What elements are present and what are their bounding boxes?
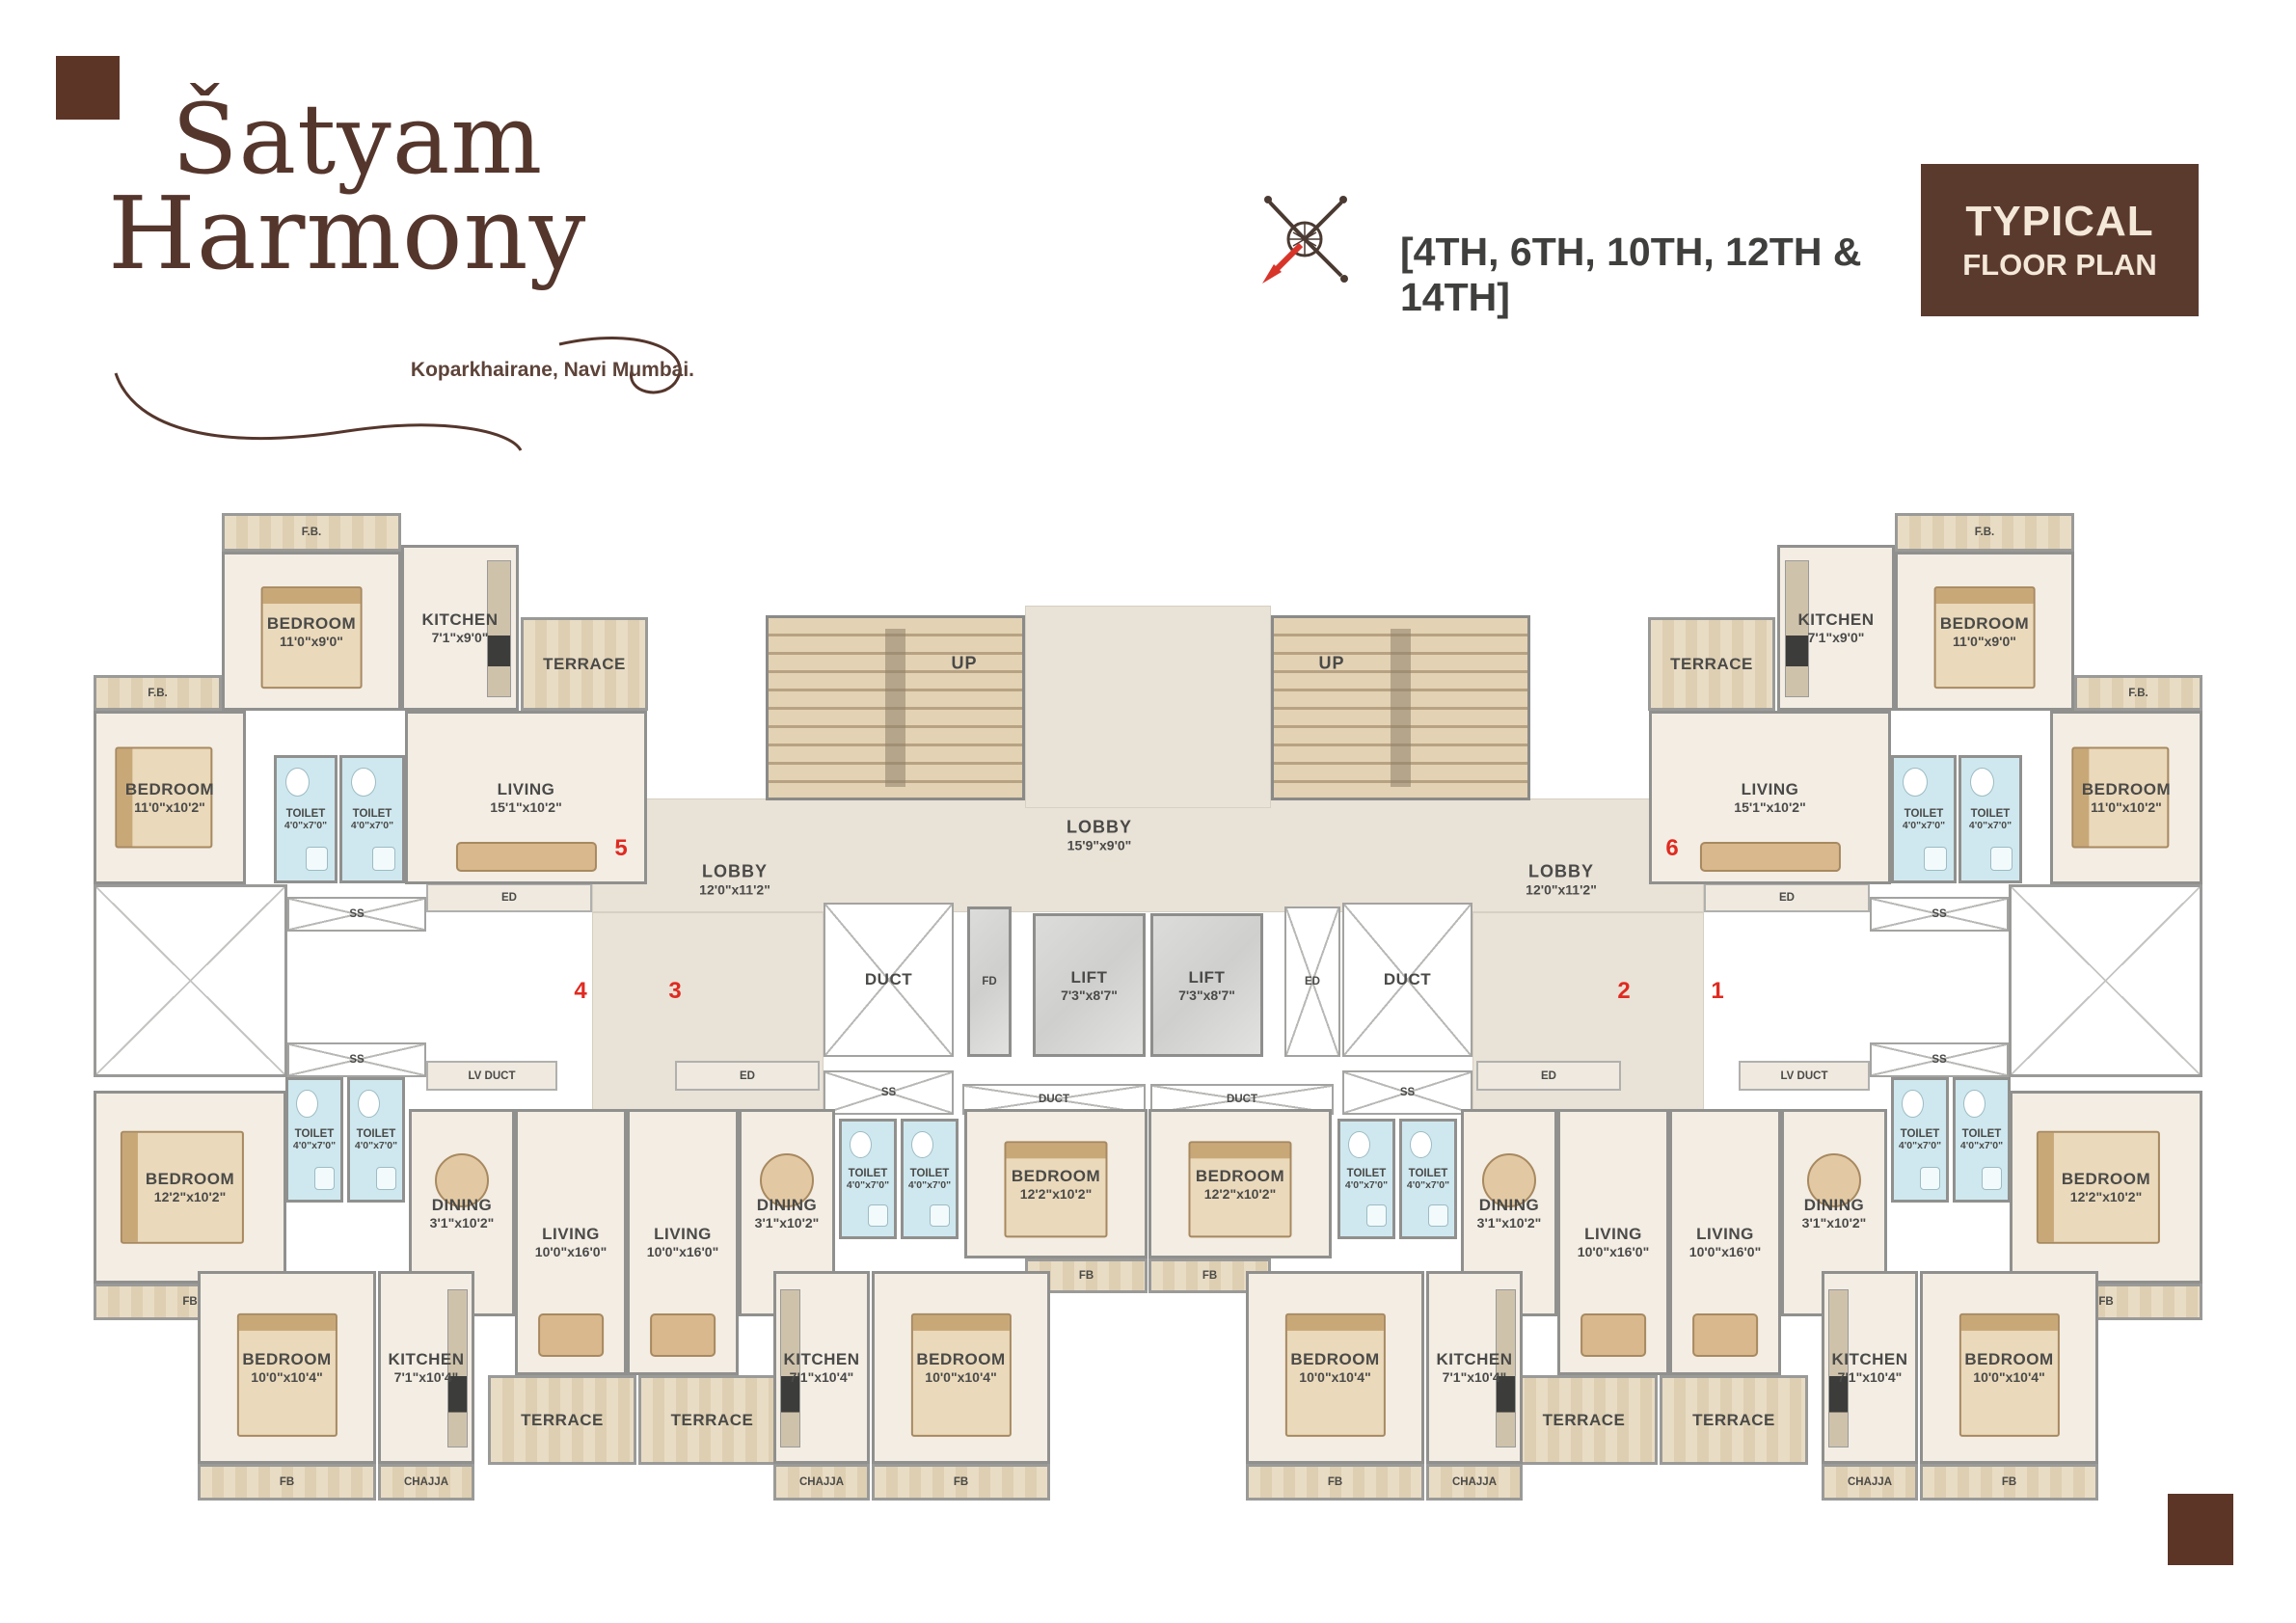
kitchen-counter-icon bbox=[780, 1289, 800, 1448]
room-toilet: TOILET4'0"x7'0" bbox=[274, 755, 338, 883]
room-terrace: TERRACE bbox=[488, 1375, 636, 1465]
room-f-b: F.B. bbox=[1895, 513, 2074, 552]
room-ed: ED bbox=[426, 883, 592, 912]
room-living: LIVING15'1"x10'2" bbox=[405, 711, 647, 884]
room-toilet: TOILET4'0"x7'0" bbox=[1953, 1077, 2011, 1203]
room-terrace: TERRACE bbox=[1648, 617, 1775, 711]
bed-icon bbox=[1958, 1313, 2059, 1437]
sofa-icon bbox=[1699, 842, 1840, 871]
room-living: LIVING10'0"x16'0" bbox=[1557, 1109, 1669, 1375]
room-living: LIVING10'0"x16'0" bbox=[515, 1109, 627, 1375]
room-duct: DUCT bbox=[824, 903, 954, 1057]
sofa-icon bbox=[1580, 1313, 1646, 1357]
bed-icon bbox=[1188, 1142, 1291, 1237]
floorplan: EDEDSSSSSSSSLV DUCTLV DUCTEDEDDUCTDUCTFD… bbox=[0, 0, 2296, 1623]
room-toilet: TOILET4'0"x7'0" bbox=[1399, 1119, 1457, 1239]
room-lv-duct: LV DUCT bbox=[1739, 1061, 1870, 1091]
sofa-icon bbox=[1692, 1313, 1758, 1357]
room-living: LIVING15'1"x10'2" bbox=[1649, 711, 1891, 884]
bed-icon bbox=[236, 1313, 337, 1437]
room-ss: SS bbox=[287, 897, 426, 932]
unit-number-1: 1 bbox=[1711, 978, 1723, 1005]
bed-icon bbox=[121, 1131, 244, 1244]
room-kitchen: KITCHEN7'1"x10'4" bbox=[1822, 1271, 1918, 1464]
unit-number-3: 3 bbox=[668, 978, 681, 1005]
unit-number-4: 4 bbox=[574, 978, 586, 1005]
bed-icon bbox=[1284, 1313, 1385, 1437]
room-living: LIVING10'0"x16'0" bbox=[627, 1109, 739, 1375]
room-bedroom: BEDROOM12'2"x10'2" bbox=[1148, 1109, 1332, 1258]
room-ss: SS bbox=[287, 1042, 426, 1077]
room-terrace: TERRACE bbox=[1660, 1375, 1808, 1465]
room-lift: LIFT7'3"x8'7" bbox=[1150, 913, 1263, 1057]
unit-number-2: 2 bbox=[1617, 978, 1630, 1005]
room-f-b: F.B. bbox=[94, 675, 222, 711]
room-ss: SS bbox=[1870, 1042, 2009, 1077]
room-ss: SS bbox=[824, 1070, 954, 1115]
room-lv-duct: LV DUCT bbox=[426, 1061, 557, 1091]
room-living: LIVING10'0"x16'0" bbox=[1669, 1109, 1781, 1375]
room-fb: FB bbox=[1246, 1464, 1424, 1501]
room-void bbox=[94, 884, 287, 1077]
room-lobby bbox=[592, 912, 824, 1123]
dining-table-icon bbox=[1807, 1153, 1861, 1207]
dining-table-icon bbox=[760, 1153, 814, 1207]
sofa-icon bbox=[455, 842, 596, 871]
room-toilet: TOILET4'0"x7'0" bbox=[839, 1119, 897, 1239]
room-ed: ED bbox=[1704, 883, 1870, 912]
room-toilet: TOILET4'0"x7'0" bbox=[1891, 755, 1957, 883]
room-bedroom: BEDROOM11'0"x9'0" bbox=[222, 552, 401, 711]
room-void bbox=[2009, 884, 2202, 1077]
room-kitchen: KITCHEN7'1"x10'4" bbox=[1426, 1271, 1523, 1464]
room-kitchen: KITCHEN7'1"x10'4" bbox=[773, 1271, 870, 1464]
room-kitchen: KITCHEN7'1"x9'0" bbox=[1777, 545, 1895, 711]
sofa-icon bbox=[538, 1313, 604, 1357]
room-chajja: CHAJJA bbox=[773, 1464, 870, 1501]
room-toilet: TOILET4'0"x7'0" bbox=[1337, 1119, 1395, 1239]
room-lobby bbox=[1025, 606, 1271, 808]
room-chajja: CHAJJA bbox=[1822, 1464, 1918, 1501]
room-stair bbox=[766, 615, 1025, 800]
room-bedroom: BEDROOM11'0"x10'2" bbox=[94, 711, 246, 884]
room-f-b: F.B. bbox=[222, 513, 401, 552]
room-toilet: TOILET4'0"x7'0" bbox=[1891, 1077, 1949, 1203]
room-fb: FB bbox=[1920, 1464, 2098, 1501]
bed-icon bbox=[910, 1313, 1011, 1437]
kitchen-counter-icon bbox=[1785, 560, 1809, 696]
room-toilet: TOILET4'0"x7'0" bbox=[1958, 755, 2022, 883]
room-toilet: TOILET4'0"x7'0" bbox=[901, 1119, 959, 1239]
room-terrace: TERRACE bbox=[1510, 1375, 1658, 1465]
room-ss: SS bbox=[1342, 1070, 1472, 1115]
bed-icon bbox=[261, 586, 363, 689]
bed-icon bbox=[2071, 747, 2169, 849]
room-fb: FB bbox=[872, 1464, 1050, 1501]
unit-number-6: 6 bbox=[1665, 835, 1678, 862]
room-bedroom: BEDROOM12'2"x10'2" bbox=[94, 1091, 286, 1284]
room-toilet: TOILET4'0"x7'0" bbox=[339, 755, 405, 883]
room-bedroom: BEDROOM10'0"x10'4" bbox=[1920, 1271, 2098, 1464]
bed-icon bbox=[1934, 586, 2036, 689]
bed-icon bbox=[2037, 1131, 2160, 1244]
room-ss: SS bbox=[1870, 897, 2009, 932]
room-stair bbox=[1271, 615, 1530, 800]
room-fd: FD bbox=[967, 906, 1012, 1057]
room-bedroom: BEDROOM10'0"x10'4" bbox=[198, 1271, 376, 1464]
area-label-up: UP bbox=[1318, 654, 1344, 674]
area-label-lobby: LOBBY12'0"x11'2" bbox=[1526, 862, 1597, 898]
room-bedroom: BEDROOM11'0"x10'2" bbox=[2050, 711, 2202, 884]
area-label-up: UP bbox=[951, 654, 977, 674]
room-kitchen: KITCHEN7'1"x9'0" bbox=[401, 545, 519, 711]
sofa-icon bbox=[650, 1313, 716, 1357]
room-chajja: CHAJJA bbox=[1426, 1464, 1523, 1501]
room-toilet: TOILET4'0"x7'0" bbox=[347, 1077, 405, 1203]
dining-table-icon bbox=[435, 1153, 489, 1207]
area-label-lobby: LOBBY15'9"x9'0" bbox=[1067, 818, 1132, 853]
room-toilet: TOILET4'0"x7'0" bbox=[285, 1077, 343, 1203]
room-bedroom: BEDROOM12'2"x10'2" bbox=[964, 1109, 1148, 1258]
room-bedroom: BEDROOM12'2"x10'2" bbox=[2010, 1091, 2202, 1284]
room-ed: ED bbox=[1284, 906, 1340, 1057]
room-terrace: TERRACE bbox=[638, 1375, 786, 1465]
kitchen-counter-icon bbox=[1828, 1289, 1849, 1448]
area-label-lobby: LOBBY12'0"x11'2" bbox=[699, 862, 770, 898]
room-f-b: F.B. bbox=[2074, 675, 2202, 711]
kitchen-counter-icon bbox=[487, 560, 511, 696]
room-kitchen: KITCHEN7'1"x10'4" bbox=[378, 1271, 474, 1464]
dining-table-icon bbox=[1482, 1153, 1536, 1207]
kitchen-counter-icon bbox=[1496, 1289, 1516, 1448]
bed-icon bbox=[115, 747, 212, 849]
room-ed: ED bbox=[1476, 1061, 1621, 1091]
room-terrace: TERRACE bbox=[521, 617, 648, 711]
room-chajja: CHAJJA bbox=[378, 1464, 474, 1501]
room-bedroom: BEDROOM10'0"x10'4" bbox=[872, 1271, 1050, 1464]
room-ed: ED bbox=[675, 1061, 820, 1091]
room-fb: FB bbox=[198, 1464, 376, 1501]
room-bedroom: BEDROOM10'0"x10'4" bbox=[1246, 1271, 1424, 1464]
room-duct: DUCT bbox=[1342, 903, 1472, 1057]
kitchen-counter-icon bbox=[447, 1289, 468, 1448]
unit-number-5: 5 bbox=[614, 835, 627, 862]
room-bedroom: BEDROOM11'0"x9'0" bbox=[1895, 552, 2074, 711]
room-lobby bbox=[1472, 912, 1704, 1123]
room-lift: LIFT7'3"x8'7" bbox=[1033, 913, 1146, 1057]
bed-icon bbox=[1004, 1142, 1107, 1237]
